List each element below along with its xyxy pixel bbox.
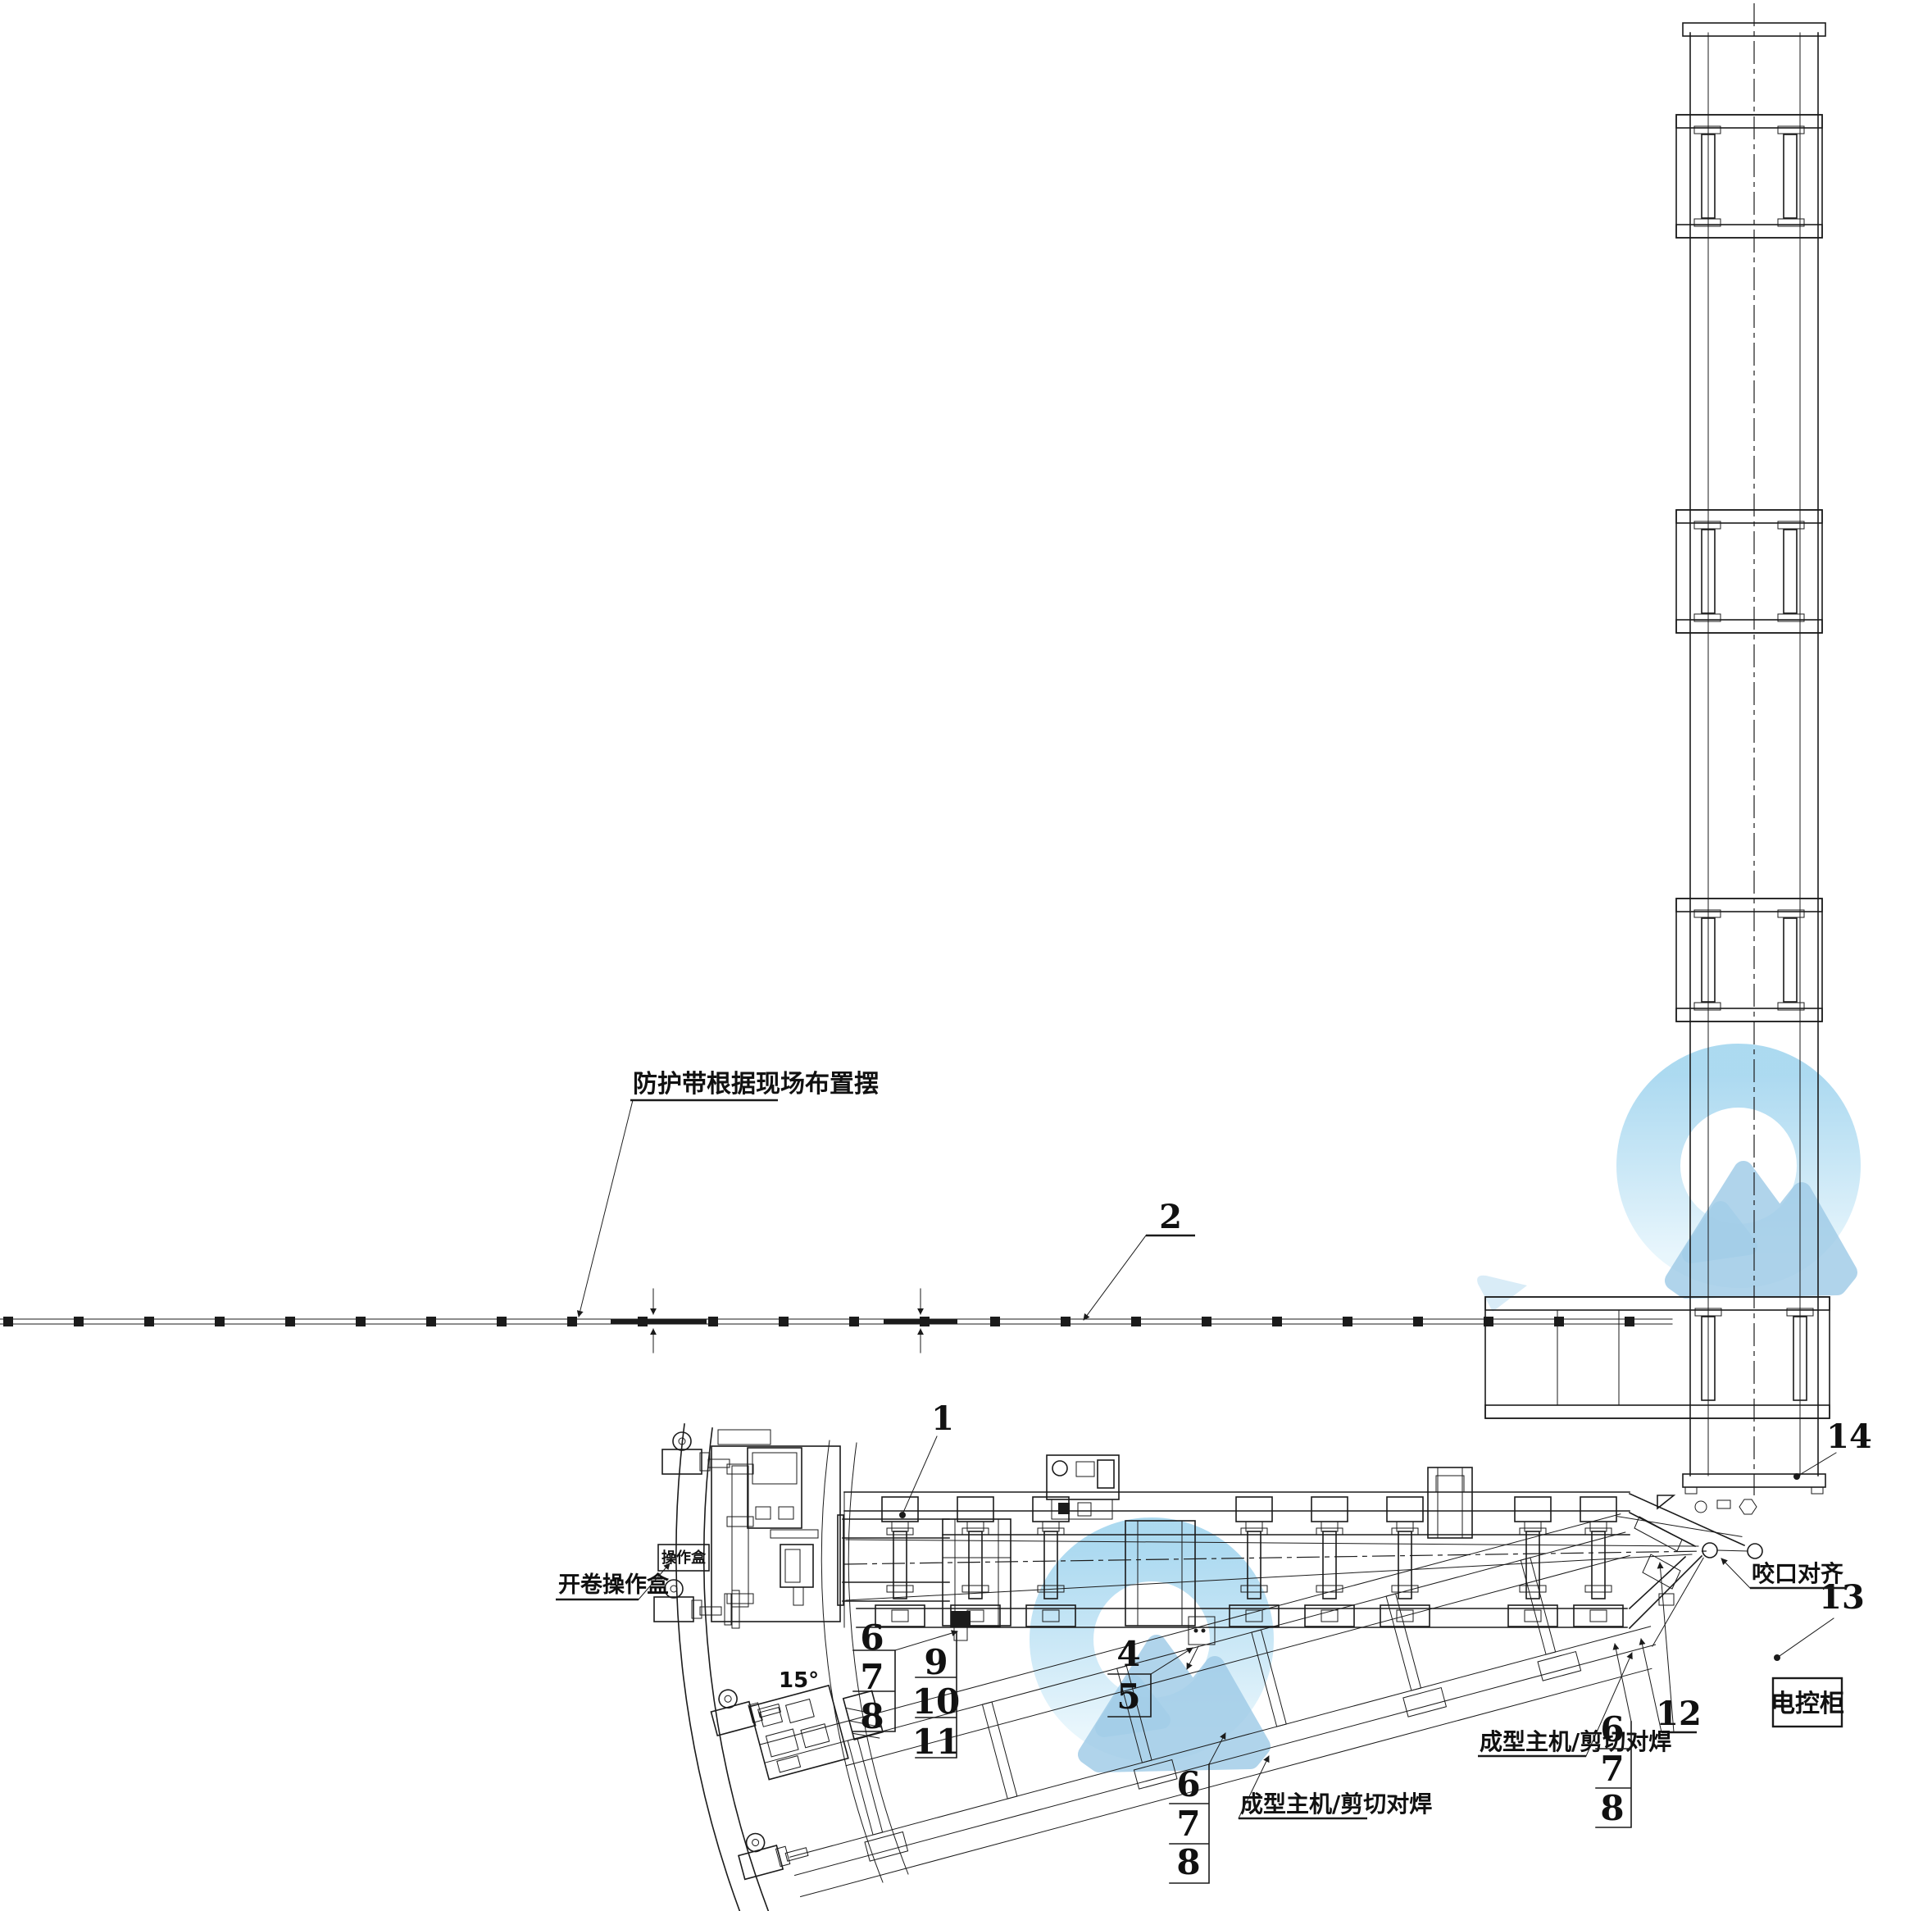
callout-2: 2 — [1084, 1198, 1195, 1320]
part-number-14: 14 — [1826, 1417, 1872, 1456]
callout-14: 14 — [1793, 1417, 1872, 1480]
seam-roller-right — [1748, 1544, 1762, 1558]
electric-cabinet: 电控柜 — [1771, 1678, 1844, 1727]
part-number-1: 1 — [931, 1399, 954, 1438]
tip-accessories — [1657, 1495, 1757, 1514]
callout-belt-note: 防护带根据现场布置摆 — [579, 1070, 879, 1317]
protective-belt — [0, 1289, 1672, 1353]
brand-watermark-logo-conveyor — [1477, 1076, 1848, 1312]
electric-cabinet-label: 电控柜 — [1771, 1690, 1844, 1718]
callout-bite-alignment: 咬口对齐 — [1721, 1558, 1847, 1588]
cad-layout-drawing: 防护带根据现场布置摆 2 1 14 13 — [0, 0, 1932, 1911]
part-number-6: 6 — [860, 1618, 884, 1658]
uncoiler-operator-box-label: 开卷操作盒 — [558, 1572, 670, 1598]
uncoiler — [654, 1430, 840, 1628]
strip-path-lines — [846, 1540, 1698, 1600]
part-number-8: 8 — [1600, 1788, 1624, 1828]
drive-motor-unit — [1047, 1455, 1119, 1519]
part-number-10: 10 — [912, 1681, 960, 1722]
conveyor-wide-bottom-box — [1485, 1297, 1830, 1418]
forming-main-left-label: 成型主机/剪切对焊 — [1240, 1790, 1432, 1818]
rotated-control-panel-box — [749, 1686, 848, 1780]
part-number-12: 12 — [1656, 1695, 1702, 1733]
callout-forming-main-right: 成型主机/剪切对焊 — [1478, 1653, 1671, 1756]
part-number-2: 2 — [1159, 1198, 1182, 1236]
part-number-7: 7 — [1600, 1749, 1624, 1789]
forming-main-right-label: 成型主机/剪切对焊 — [1480, 1728, 1671, 1755]
callout-13: 13 — [1774, 1578, 1865, 1661]
uncoiler-motor-top — [662, 1432, 730, 1474]
welder-unit — [1428, 1467, 1472, 1538]
callout-stack-91011: 9 10 11 — [912, 1631, 960, 1762]
belt-note-label: 防护带根据现场布置摆 — [633, 1070, 879, 1099]
part-number-5: 5 — [1116, 1677, 1140, 1717]
part-number-7: 7 — [1176, 1804, 1200, 1844]
callout-1: 1 — [899, 1399, 954, 1518]
bite-alignment-label: 咬口对齐 — [1752, 1560, 1844, 1587]
part-number-8: 8 — [1176, 1842, 1200, 1882]
part-number-4: 4 — [1116, 1634, 1140, 1674]
operator-box: 操作盒 — [658, 1545, 709, 1571]
rotated-end-motor-bottom — [734, 1822, 810, 1879]
part-number-8: 8 — [860, 1696, 884, 1736]
part-number-11: 11 — [912, 1722, 960, 1762]
part-number-6: 6 — [1176, 1764, 1200, 1804]
roller-station — [1380, 1497, 1430, 1627]
operator-box-label: 操作盒 — [661, 1549, 707, 1567]
seam-tip — [1630, 1494, 1762, 1628]
angle-15-label: 15° — [779, 1668, 819, 1693]
part-number-6: 6 — [1600, 1709, 1624, 1749]
duct-line-layout-svg: 防护带根据现场布置摆 2 1 14 13 — [0, 0, 1932, 1911]
callout-uncoiler-operator-box: 开卷操作盒 — [556, 1563, 670, 1599]
roller-station — [1574, 1497, 1623, 1627]
callout-forming-main-left: 成型主机/剪切对焊 — [1239, 1756, 1432, 1818]
seam-roller-left — [1702, 1543, 1717, 1558]
part-number-9: 9 — [924, 1642, 948, 1682]
leader-target-component — [951, 1611, 971, 1626]
